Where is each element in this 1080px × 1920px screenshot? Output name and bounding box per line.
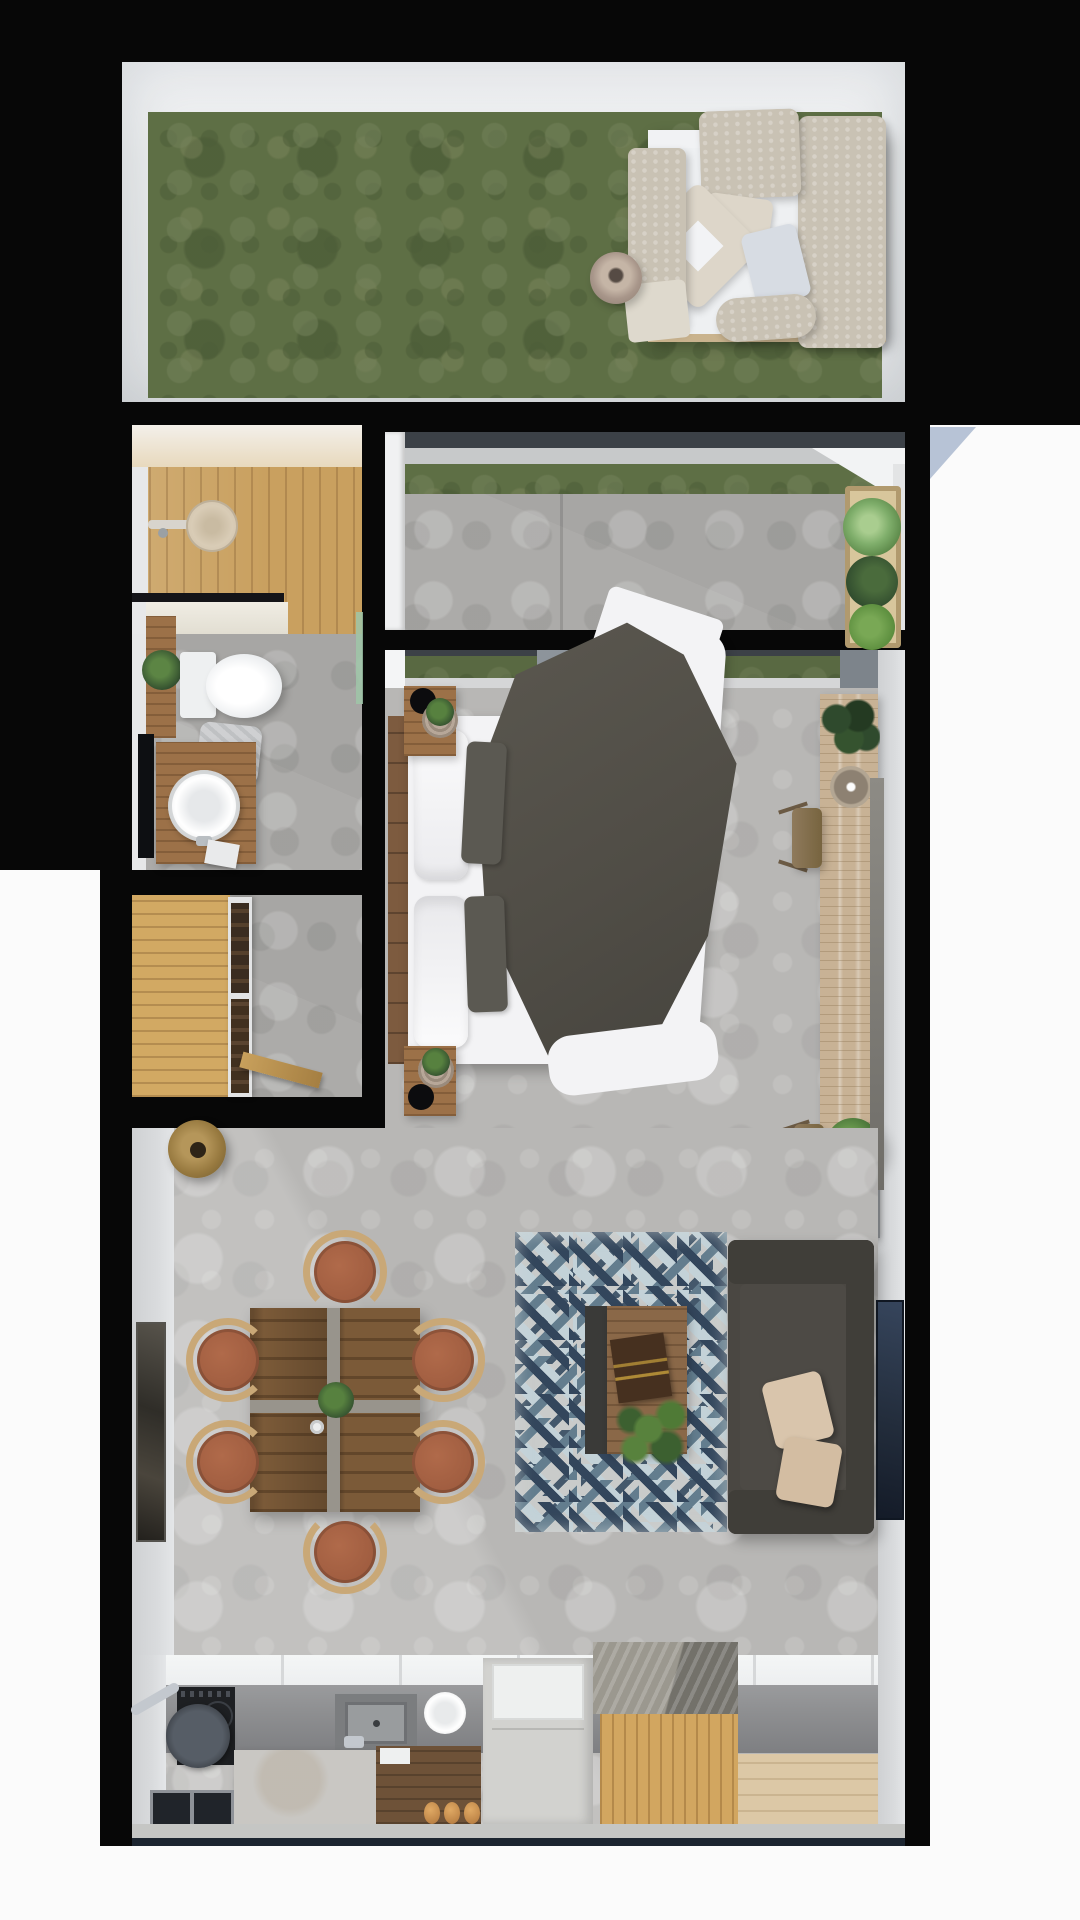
desk-plant-top — [818, 696, 880, 762]
bread-roll-1 — [424, 1802, 440, 1824]
bathroom-mirror — [138, 734, 154, 858]
bedroom-door-frame — [385, 650, 405, 688]
bed-pillow-white-bottom — [414, 896, 468, 1048]
wardrobe-shelf-top — [231, 903, 249, 993]
dining-table-cup — [310, 1420, 324, 1434]
lounge-bolster — [715, 293, 818, 344]
vessel-sink — [168, 770, 240, 842]
bed-pillow-dark-bottom — [464, 895, 508, 1012]
wall-art-right — [876, 1300, 904, 1520]
bread-roll-3 — [464, 1802, 480, 1824]
nightstand-top-plant — [426, 698, 454, 726]
window-mullion-right — [840, 650, 878, 688]
lounge-cushion-top — [698, 108, 801, 199]
butcher-block-stone-top — [593, 1642, 738, 1714]
floor-grate — [150, 1790, 234, 1828]
sofa-pillow-2 — [775, 1435, 843, 1508]
chair-seat — [197, 1431, 259, 1493]
dining-chair-top — [303, 1230, 387, 1314]
frying-pan — [166, 1704, 230, 1768]
chair-seat — [314, 1241, 376, 1303]
nightstand-bottom-black-bowl — [408, 1084, 434, 1110]
coffee-table-plant — [608, 1384, 698, 1474]
sofa-backrest — [846, 1246, 874, 1528]
shower-arm — [148, 520, 190, 529]
bread-roll-2 — [444, 1802, 460, 1824]
terrace-window-frame — [385, 432, 905, 448]
exterior-right — [930, 425, 1080, 1920]
pendant-lamp-hole — [190, 1142, 206, 1158]
exterior-bottom — [0, 1846, 1080, 1920]
nightstand-bottom-plant — [422, 1048, 450, 1076]
floor-plan-canvas — [0, 0, 1080, 1920]
stool-1-seat — [792, 808, 822, 868]
dining-table-plant — [318, 1382, 354, 1418]
kitchen-faucet — [344, 1736, 364, 1748]
plate — [424, 1692, 466, 1734]
bathroom-divider-wall — [132, 593, 284, 602]
kitchen-bottom-plinth — [132, 1838, 905, 1846]
bed-pillow-dark-top — [461, 741, 507, 865]
stool-1 — [784, 800, 826, 876]
garden-vase — [590, 252, 642, 304]
floor-grate-bar — [190, 1790, 194, 1828]
dining-chair-left-1 — [186, 1318, 270, 1402]
closet-wood-floor — [132, 895, 230, 1097]
glass-partition — [356, 612, 363, 704]
coffee-table-dark-band — [585, 1306, 607, 1454]
toilet-bowl — [206, 654, 282, 718]
chair-seat — [412, 1431, 474, 1493]
cooktop-knobs — [181, 1691, 231, 1697]
kitchen-sink-drain — [373, 1720, 380, 1727]
shower-drain-mat — [186, 500, 238, 552]
dining-chair-bottom — [303, 1510, 387, 1594]
exterior-left — [0, 870, 100, 1920]
fridge — [483, 1658, 593, 1824]
fridge-top-lid — [492, 1664, 584, 1720]
island-tray — [380, 1748, 410, 1764]
chair-seat — [197, 1329, 259, 1391]
planter-plant-light — [843, 498, 901, 556]
chair-seat — [412, 1329, 474, 1391]
shower-valve — [158, 528, 168, 538]
butcher-block-cube — [600, 1714, 738, 1838]
terrace-grass-strip — [390, 464, 900, 494]
terrace-door-frame — [385, 432, 405, 630]
desk-pendant-bowl — [830, 766, 872, 808]
island-counter — [234, 1750, 376, 1824]
wall-art-left — [136, 1322, 166, 1542]
shelf-plant — [142, 650, 182, 690]
dining-chair-right-2 — [401, 1420, 485, 1504]
planter-plant-grass — [849, 604, 895, 650]
dining-chair-right-1 — [401, 1318, 485, 1402]
planter-plant-dark — [846, 556, 898, 608]
dining-chair-left-2 — [186, 1420, 270, 1504]
terrace-tile-seam — [560, 494, 563, 630]
wardrobe-shelf-bottom — [231, 999, 249, 1093]
kitchen-bottom-sill — [132, 1824, 905, 1838]
fridge-seam — [492, 1728, 584, 1730]
entry-wood-floor — [738, 1754, 878, 1828]
chair-seat — [314, 1521, 376, 1583]
bed-headboard — [388, 716, 408, 1064]
shower-top-wall — [132, 425, 362, 467]
